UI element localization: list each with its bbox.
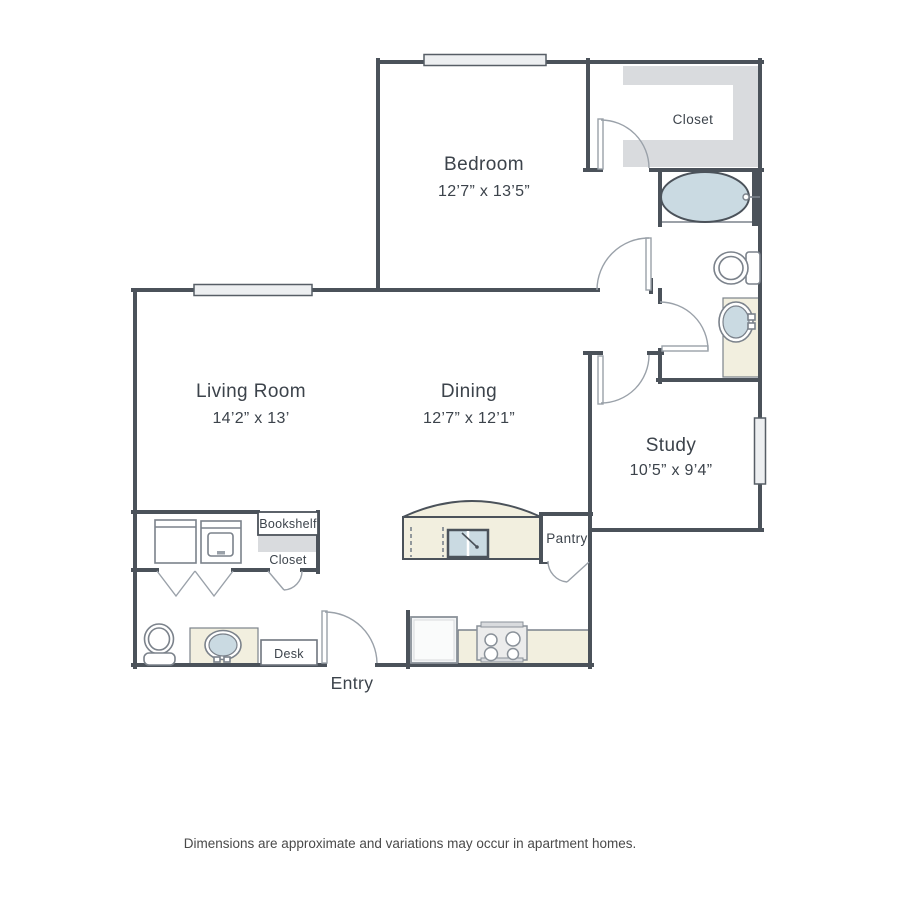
disclaimer-text: Dimensions are approximate and variation… (184, 836, 636, 851)
entry-label: Entry (331, 673, 374, 693)
bathroom-south-door (660, 302, 708, 351)
bedroom-label: Bedroom (444, 154, 524, 175)
living-room-window (194, 285, 312, 296)
laundry-bifold-doors (157, 571, 233, 596)
hall-closet-label: Closet (269, 553, 306, 567)
bedroom-dims: 12’7” x 13’5” (438, 183, 530, 200)
walk-in-closet-label: Closet (673, 112, 714, 127)
living-room-label: Living Room (196, 381, 306, 402)
refrigerator (411, 617, 457, 663)
washer (155, 520, 196, 563)
bedroom-window (424, 55, 546, 66)
hall-closet-shelf (258, 536, 318, 552)
study-window (755, 418, 766, 484)
pantry-label: Pantry (546, 531, 587, 546)
toilet-main (714, 252, 760, 284)
bathtub (661, 172, 760, 222)
stove (477, 622, 527, 662)
study-dims: 10’5” x 9’4” (630, 462, 713, 479)
kitchen-island (403, 501, 541, 559)
pantry-door (548, 561, 589, 582)
floor-plan-page: Bedroom 12’7” x 13’5” Living Room 14’2” … (0, 0, 900, 900)
bedroom-suite-door (597, 238, 651, 290)
toilet-guest (144, 624, 175, 665)
dining-dims: 12’7” x 12’1” (423, 410, 515, 427)
floor-plan: Bedroom 12’7” x 13’5” Living Room 14’2” … (0, 0, 900, 900)
living-room-dims: 14’2” x 13’ (212, 410, 289, 427)
study-door (598, 355, 649, 404)
desk-label: Desk (274, 647, 304, 661)
study-label: Study (646, 435, 697, 456)
entry-door (322, 611, 377, 663)
dryer (201, 521, 241, 563)
hall-closet-door (268, 571, 302, 590)
island-sink (448, 530, 488, 557)
dining-label: Dining (441, 381, 497, 402)
bookshelf-label: Bookshelf (259, 517, 317, 531)
